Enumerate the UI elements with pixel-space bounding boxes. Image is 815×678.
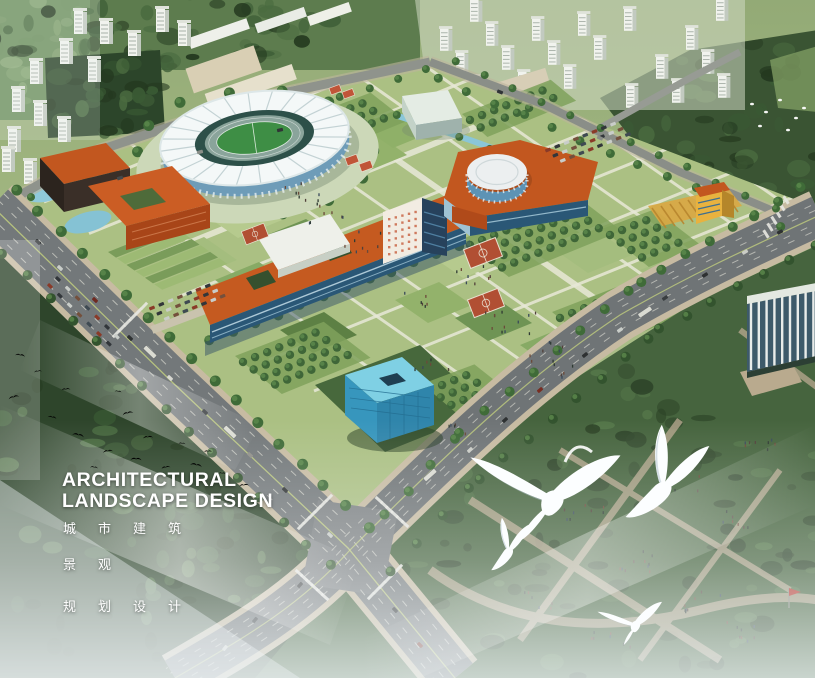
street-tree-light bbox=[655, 325, 660, 330]
street-tree-light bbox=[707, 298, 712, 303]
orchard-tree-light bbox=[311, 342, 315, 346]
person bbox=[380, 232, 381, 235]
orchard-tree-light bbox=[629, 234, 633, 238]
street-tree-light bbox=[337, 94, 341, 98]
street-tree-light bbox=[225, 89, 231, 95]
person bbox=[572, 365, 573, 368]
scene-svg bbox=[0, 0, 815, 678]
orchard-tree-light bbox=[320, 362, 324, 366]
person bbox=[504, 330, 505, 333]
forest-blob bbox=[774, 117, 783, 132]
orchard-tree-light bbox=[617, 239, 621, 243]
tower-window bbox=[401, 249, 403, 251]
person bbox=[494, 314, 495, 317]
forest-blob bbox=[108, 91, 116, 100]
tower-window bbox=[388, 225, 390, 227]
orchard-tree-light bbox=[437, 394, 441, 398]
person bbox=[552, 360, 553, 363]
tower-window bbox=[388, 232, 390, 234]
person bbox=[377, 245, 378, 248]
orchard-tree-light bbox=[477, 124, 481, 128]
orchard-tree-light bbox=[654, 224, 658, 228]
street-tree-light bbox=[491, 100, 496, 105]
street-tree-light bbox=[232, 396, 238, 402]
tower-window bbox=[401, 235, 403, 237]
orchard-tree-light bbox=[479, 112, 483, 116]
street-tree-light bbox=[622, 353, 627, 358]
orchard-tree-light bbox=[323, 337, 327, 341]
orchard-tree-light bbox=[272, 381, 276, 385]
street-tree-light bbox=[211, 377, 217, 383]
street-tree-light bbox=[625, 287, 630, 292]
street-tree-light bbox=[394, 112, 398, 116]
street-tree-light bbox=[506, 388, 511, 393]
street-tree-light bbox=[463, 88, 468, 93]
orchard-tree-light bbox=[514, 109, 518, 113]
tower-window bbox=[395, 237, 397, 239]
orchard-tree-light bbox=[547, 245, 551, 249]
person bbox=[501, 311, 502, 314]
haze-top-left bbox=[0, 0, 100, 140]
street-tree-light bbox=[435, 75, 440, 80]
person bbox=[474, 282, 475, 285]
street-tree-light bbox=[601, 305, 606, 310]
person bbox=[414, 368, 415, 371]
orchard-tree-light bbox=[619, 227, 623, 231]
street-tree-light bbox=[549, 124, 554, 129]
street-tree-light bbox=[567, 112, 571, 116]
person bbox=[456, 270, 457, 273]
street-tree-light bbox=[144, 313, 150, 319]
person bbox=[535, 312, 536, 315]
street-tree-light bbox=[395, 76, 399, 80]
street-tree-light bbox=[367, 85, 371, 89]
orchard-tree-light bbox=[526, 230, 530, 234]
street-tree-light bbox=[69, 317, 74, 322]
street-tree-light bbox=[453, 58, 457, 62]
person bbox=[362, 247, 363, 250]
tower-window bbox=[395, 251, 397, 253]
street-tree-light bbox=[637, 278, 642, 283]
orchard-tree-light bbox=[524, 242, 528, 246]
person bbox=[344, 245, 345, 248]
orchard-tree-light bbox=[514, 234, 518, 238]
orchard-tree-light bbox=[299, 347, 303, 351]
colonnade-building bbox=[747, 283, 815, 378]
orchard-tree-light bbox=[287, 351, 291, 355]
tower-window bbox=[414, 239, 416, 241]
orchard-tree-light bbox=[491, 232, 495, 236]
person bbox=[298, 192, 299, 195]
orchard-tree-light bbox=[359, 100, 363, 104]
street-tree-light bbox=[760, 270, 765, 275]
tower-window bbox=[388, 218, 390, 220]
person bbox=[501, 331, 502, 334]
street-tree-light bbox=[706, 237, 711, 242]
street-tree-light bbox=[78, 249, 84, 255]
tower-window bbox=[395, 230, 397, 232]
person bbox=[559, 350, 560, 353]
street-tree-light bbox=[681, 250, 686, 255]
orchard-tree-light bbox=[651, 249, 655, 253]
orchard-tree-light bbox=[596, 225, 600, 229]
orchard-tree-light bbox=[539, 87, 543, 91]
person bbox=[342, 216, 343, 219]
forest-blob bbox=[126, 109, 148, 116]
forest-blob bbox=[258, 5, 268, 13]
street-tree-light bbox=[713, 180, 717, 184]
orchard-tree-light bbox=[664, 232, 668, 236]
street-tree-light bbox=[634, 161, 639, 166]
orchard-tree-light bbox=[557, 315, 561, 319]
forest-blob bbox=[121, 118, 134, 134]
tower-window bbox=[408, 213, 410, 215]
person bbox=[305, 199, 306, 202]
person bbox=[561, 376, 562, 379]
street-tree-light bbox=[549, 415, 554, 420]
tower-window bbox=[408, 234, 410, 236]
orchard-tree-light bbox=[583, 230, 587, 234]
orchard-tree-light bbox=[347, 105, 351, 109]
tower-window bbox=[414, 225, 416, 227]
orchard-tree-light bbox=[262, 361, 266, 365]
person bbox=[467, 275, 468, 278]
person bbox=[299, 196, 300, 199]
person bbox=[285, 186, 286, 189]
person bbox=[356, 250, 357, 253]
orchard-tree-light bbox=[462, 384, 466, 388]
forest-blob bbox=[722, 122, 738, 135]
person bbox=[485, 311, 486, 314]
orchard-tree-light bbox=[261, 374, 265, 378]
egret bbox=[764, 111, 768, 114]
street-tree-light bbox=[598, 375, 603, 380]
orchard-tree-light bbox=[312, 329, 316, 333]
tower-window bbox=[414, 232, 416, 234]
orchard-tree-light bbox=[448, 402, 452, 406]
person bbox=[563, 372, 564, 375]
orchard-tree-light bbox=[300, 334, 304, 338]
orchard-tree-light bbox=[652, 237, 656, 241]
orchard-tree-light bbox=[381, 115, 385, 119]
street-tree-light bbox=[133, 147, 139, 153]
haze-left-edge bbox=[0, 240, 40, 480]
person bbox=[318, 193, 319, 196]
person bbox=[542, 350, 543, 353]
street-tree-light bbox=[664, 173, 669, 178]
park-blob bbox=[642, 410, 652, 420]
person bbox=[430, 358, 431, 361]
forest-blob bbox=[121, 57, 141, 70]
egret bbox=[750, 103, 754, 106]
forest-blob bbox=[234, 3, 251, 17]
orchard-tree-light bbox=[561, 227, 565, 231]
street-tree-light bbox=[797, 183, 802, 188]
orchard-tree-light bbox=[538, 225, 542, 229]
person bbox=[430, 363, 431, 366]
person bbox=[319, 205, 320, 208]
orchard-tree-light bbox=[523, 254, 527, 258]
street-tree-light bbox=[645, 335, 650, 340]
orchard-tree-light bbox=[536, 237, 540, 241]
forest-blob bbox=[787, 160, 810, 177]
person bbox=[367, 250, 368, 253]
orchard-tree-light bbox=[643, 217, 647, 221]
street-tree-light bbox=[530, 369, 535, 374]
forest-blob bbox=[120, 90, 134, 102]
street-tree-light bbox=[28, 194, 32, 198]
orchard-tree-light bbox=[512, 247, 516, 251]
orchard-tree-light bbox=[451, 377, 455, 381]
egret bbox=[802, 107, 806, 110]
orchard-tree-light bbox=[573, 222, 577, 226]
person bbox=[358, 231, 359, 234]
street-tree-light bbox=[751, 211, 756, 216]
orchard-tree-light bbox=[489, 119, 493, 123]
forest-blob bbox=[132, 87, 146, 103]
orchard-tree-light bbox=[631, 222, 635, 226]
aerial-campus-rendering: ARCHITECTURAL LANDSCAPE DESIGN 城市建筑 景观 规… bbox=[0, 0, 815, 678]
orchard-tree-light bbox=[535, 249, 539, 253]
tower-window bbox=[388, 246, 390, 248]
person bbox=[490, 275, 491, 278]
street-tree-light bbox=[777, 223, 782, 228]
street-tree-light bbox=[57, 227, 63, 233]
orchard-tree-light bbox=[460, 397, 464, 401]
orchard-tree-light bbox=[663, 244, 667, 248]
egret bbox=[794, 117, 798, 120]
tower-window bbox=[401, 221, 403, 223]
residential-tower bbox=[469, 0, 482, 22]
person bbox=[421, 301, 422, 304]
forest-blob bbox=[141, 5, 154, 20]
person bbox=[488, 277, 489, 280]
street-tree-light bbox=[785, 256, 790, 261]
person bbox=[425, 305, 426, 308]
forest-blob bbox=[100, 69, 114, 83]
orchard-tree-light bbox=[370, 108, 374, 112]
street-tree-light bbox=[683, 312, 688, 317]
person bbox=[354, 239, 355, 242]
tower-window bbox=[401, 242, 403, 244]
orchard-tree-light bbox=[284, 376, 288, 380]
orchard-tree-light bbox=[675, 239, 679, 243]
street-tree-light bbox=[572, 394, 577, 399]
orchard-tree-light bbox=[250, 366, 254, 370]
person bbox=[425, 295, 426, 298]
person bbox=[483, 265, 484, 268]
street-tree-light bbox=[176, 98, 182, 104]
orchard-tree-light bbox=[607, 232, 611, 236]
tower-window bbox=[408, 227, 410, 229]
orchard-tree-light bbox=[479, 237, 483, 241]
tower-window bbox=[401, 228, 403, 230]
tower-window bbox=[414, 211, 416, 213]
orchard-tree-light bbox=[296, 371, 300, 375]
street-tree-light bbox=[521, 111, 526, 116]
orchard-tree-light bbox=[550, 95, 554, 99]
person bbox=[426, 303, 427, 306]
person bbox=[466, 281, 467, 284]
egret bbox=[758, 125, 762, 128]
person bbox=[554, 363, 555, 366]
street-tree-light bbox=[480, 407, 485, 412]
person bbox=[323, 212, 324, 215]
person bbox=[461, 268, 462, 271]
person bbox=[504, 326, 505, 329]
orchard-tree-light bbox=[642, 229, 646, 233]
egret bbox=[786, 129, 790, 132]
tower-window bbox=[401, 214, 403, 216]
person bbox=[550, 342, 551, 345]
orchard-tree-light bbox=[322, 349, 326, 353]
person bbox=[404, 292, 405, 295]
park-blob bbox=[631, 379, 654, 395]
forest-blob bbox=[677, 140, 695, 154]
street-tree-light bbox=[628, 139, 632, 143]
tower-window bbox=[388, 239, 390, 241]
forest-blob bbox=[695, 116, 714, 124]
orchard-tree-light bbox=[585, 217, 589, 221]
orchard-tree-light bbox=[502, 239, 506, 243]
tower-window bbox=[408, 248, 410, 250]
orchard-tree-light bbox=[467, 117, 471, 121]
street-tree-light bbox=[598, 125, 602, 129]
orchard-tree-light bbox=[569, 310, 573, 314]
orchard-tree-light bbox=[288, 339, 292, 343]
street-tree-light bbox=[774, 198, 779, 203]
tower-window bbox=[408, 220, 410, 222]
person bbox=[317, 203, 318, 206]
orchard-tree-light bbox=[308, 366, 312, 370]
orchard-tree-light bbox=[273, 369, 277, 373]
person bbox=[426, 361, 427, 364]
orchard-tree-light bbox=[628, 247, 632, 251]
street-tree-light bbox=[482, 72, 486, 76]
orchard-tree-light bbox=[463, 372, 467, 376]
street-tree-light bbox=[657, 266, 662, 271]
orchard-tree-light bbox=[502, 114, 506, 118]
street-tree-light bbox=[538, 99, 542, 103]
orchard-tree-light bbox=[474, 379, 478, 383]
person bbox=[549, 341, 550, 344]
park-blob bbox=[618, 364, 635, 379]
person bbox=[296, 192, 297, 195]
person bbox=[331, 211, 332, 214]
street-tree-light bbox=[607, 150, 612, 155]
orchard-tree-light bbox=[571, 235, 575, 239]
tower-window bbox=[414, 218, 416, 220]
forest-blob bbox=[661, 115, 671, 131]
orchard-tree-light bbox=[297, 359, 301, 363]
tower-window bbox=[408, 241, 410, 243]
orchard-tree-light bbox=[275, 356, 279, 360]
person bbox=[492, 327, 493, 330]
person bbox=[531, 360, 532, 363]
forest-blob bbox=[186, 54, 200, 60]
street-tree-light bbox=[122, 291, 128, 297]
orchard-tree-light bbox=[549, 232, 553, 236]
forest-blob bbox=[299, 19, 310, 33]
orchard-tree-light bbox=[640, 242, 644, 246]
person bbox=[301, 182, 302, 185]
orchard-tree-light bbox=[449, 389, 453, 393]
tower-window bbox=[395, 223, 397, 225]
orchard-tree-light bbox=[344, 352, 348, 356]
orchard-tree-light bbox=[264, 349, 268, 353]
orchard-tree-light bbox=[276, 344, 280, 348]
orchard-tree-light bbox=[309, 354, 313, 358]
orchard-tree-light bbox=[240, 359, 244, 363]
street-tree-light bbox=[656, 152, 660, 156]
person bbox=[422, 303, 423, 306]
street-tree-light bbox=[684, 164, 688, 168]
orchard-tree-light bbox=[285, 364, 289, 368]
person bbox=[529, 332, 530, 335]
street-tree-light bbox=[554, 346, 559, 351]
tower-window bbox=[395, 244, 397, 246]
forest-blob bbox=[99, 125, 118, 136]
orchard-tree-light bbox=[252, 354, 256, 358]
orchard-tree-light bbox=[332, 357, 336, 361]
forest-blob bbox=[731, 155, 754, 169]
street-tree-light bbox=[93, 337, 98, 342]
orchard-tree-light bbox=[503, 102, 507, 106]
orchard-tree-light bbox=[499, 264, 503, 268]
forest-blob bbox=[744, 105, 765, 119]
forest-blob bbox=[719, 136, 741, 142]
person bbox=[518, 321, 519, 324]
person bbox=[309, 222, 310, 225]
egret bbox=[778, 99, 782, 102]
tower-window bbox=[414, 246, 416, 248]
street-tree-light bbox=[734, 282, 739, 287]
street-tree-light bbox=[423, 66, 427, 70]
person bbox=[317, 199, 318, 202]
orchard-tree-light bbox=[639, 254, 643, 258]
street-tree-light bbox=[100, 270, 106, 276]
street-tree-light bbox=[509, 85, 513, 89]
street-tree-light bbox=[187, 354, 193, 360]
person bbox=[562, 346, 563, 349]
tower-window bbox=[395, 216, 397, 218]
person bbox=[529, 354, 530, 357]
orchard-tree-light bbox=[511, 259, 515, 263]
street-tree-light bbox=[12, 186, 18, 192]
street-tree-light bbox=[742, 193, 746, 197]
person bbox=[448, 368, 449, 371]
tower-window bbox=[388, 253, 390, 255]
orchard-tree-light bbox=[334, 344, 338, 348]
person bbox=[422, 366, 423, 369]
street-tree-light bbox=[576, 327, 581, 332]
street-tree-light bbox=[144, 121, 150, 127]
residential-tower bbox=[715, 0, 728, 21]
street-tree-light bbox=[47, 294, 52, 299]
street-tree-light bbox=[33, 207, 39, 213]
orchard-tree-light bbox=[559, 240, 563, 244]
street-tree-light bbox=[729, 223, 734, 228]
forest-blob bbox=[294, 35, 310, 48]
street-tree-light bbox=[165, 333, 171, 339]
orchard-tree-light bbox=[368, 120, 372, 124]
orchard-tree-light bbox=[439, 382, 443, 386]
person bbox=[528, 314, 529, 317]
street-tree-light bbox=[773, 205, 777, 209]
